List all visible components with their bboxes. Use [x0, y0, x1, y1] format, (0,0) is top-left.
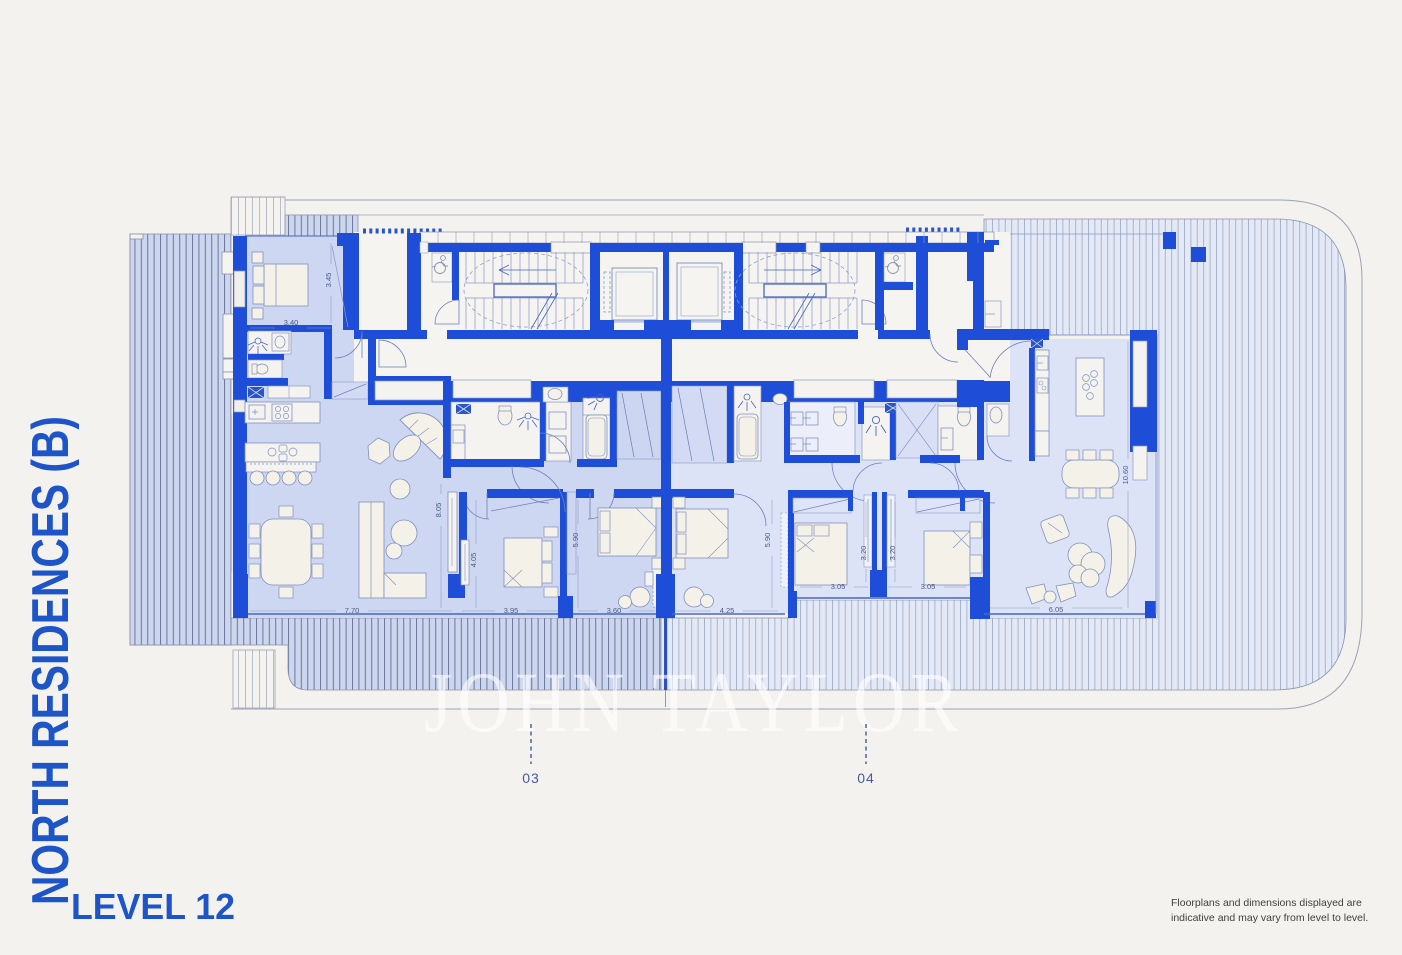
- svg-text:03: 03: [522, 770, 540, 786]
- svg-text:JOHN TAYLOR: JOHN TAYLOR: [424, 654, 964, 750]
- svg-text:5.90: 5.90: [571, 533, 580, 548]
- svg-text:3.20: 3.20: [859, 546, 868, 561]
- svg-text:NORTH RESIDENCES (B): NORTH RESIDENCES (B): [22, 416, 80, 905]
- svg-text:6.05: 6.05: [1049, 605, 1064, 614]
- svg-text:Floorplans and dimensions disp: Floorplans and dimensions displayed are: [1171, 897, 1362, 909]
- svg-text:7.70: 7.70: [345, 606, 360, 615]
- svg-text:3.45: 3.45: [324, 273, 333, 288]
- svg-text:4.05: 4.05: [469, 553, 478, 568]
- svg-text:04: 04: [857, 770, 875, 786]
- svg-text:3.20: 3.20: [888, 546, 897, 561]
- svg-text:8.05: 8.05: [434, 503, 443, 518]
- svg-text:indicative and may vary from l: indicative and may vary from level to le…: [1171, 912, 1368, 924]
- svg-text:5.90: 5.90: [763, 533, 772, 548]
- svg-text:LEVEL 12: LEVEL 12: [71, 886, 235, 927]
- svg-text:3.05: 3.05: [831, 582, 846, 591]
- svg-text:3.60: 3.60: [607, 606, 622, 615]
- svg-text:3.05: 3.05: [921, 582, 936, 591]
- svg-text:3.95: 3.95: [504, 606, 519, 615]
- svg-text:10.60: 10.60: [1121, 466, 1130, 485]
- svg-text:4.25: 4.25: [720, 606, 735, 615]
- svg-text:3.40: 3.40: [284, 318, 299, 327]
